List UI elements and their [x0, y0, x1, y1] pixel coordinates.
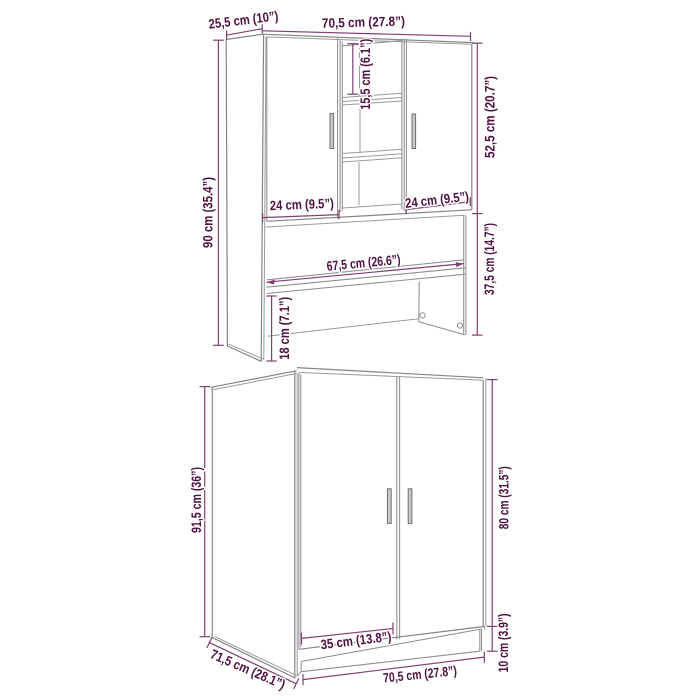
svg-text:24 cm (9.5”): 24 cm (9.5”): [270, 196, 335, 214]
svg-text:10 cm (3.9”): 10 cm (3.9”): [496, 613, 511, 672]
svg-text:18 cm (7.1”): 18 cm (7.1”): [277, 297, 292, 360]
svg-text:90 cm (35.4”): 90 cm (35.4”): [201, 177, 216, 248]
svg-text:80 cm (31.5”): 80 cm (31.5”): [496, 466, 511, 529]
svg-text:91,5 cm (36”): 91,5 cm (36”): [189, 467, 204, 533]
svg-text:37,5 cm (14.7”): 37,5 cm (14.7”): [482, 223, 497, 295]
svg-text:70,5 cm (27.8”): 70,5 cm (27.8”): [322, 14, 405, 31]
svg-text:52,5 cm (20.7”): 52,5 cm (20.7”): [483, 76, 498, 158]
svg-text:15,5 cm (6.1”): 15,5 cm (6.1”): [358, 39, 373, 110]
